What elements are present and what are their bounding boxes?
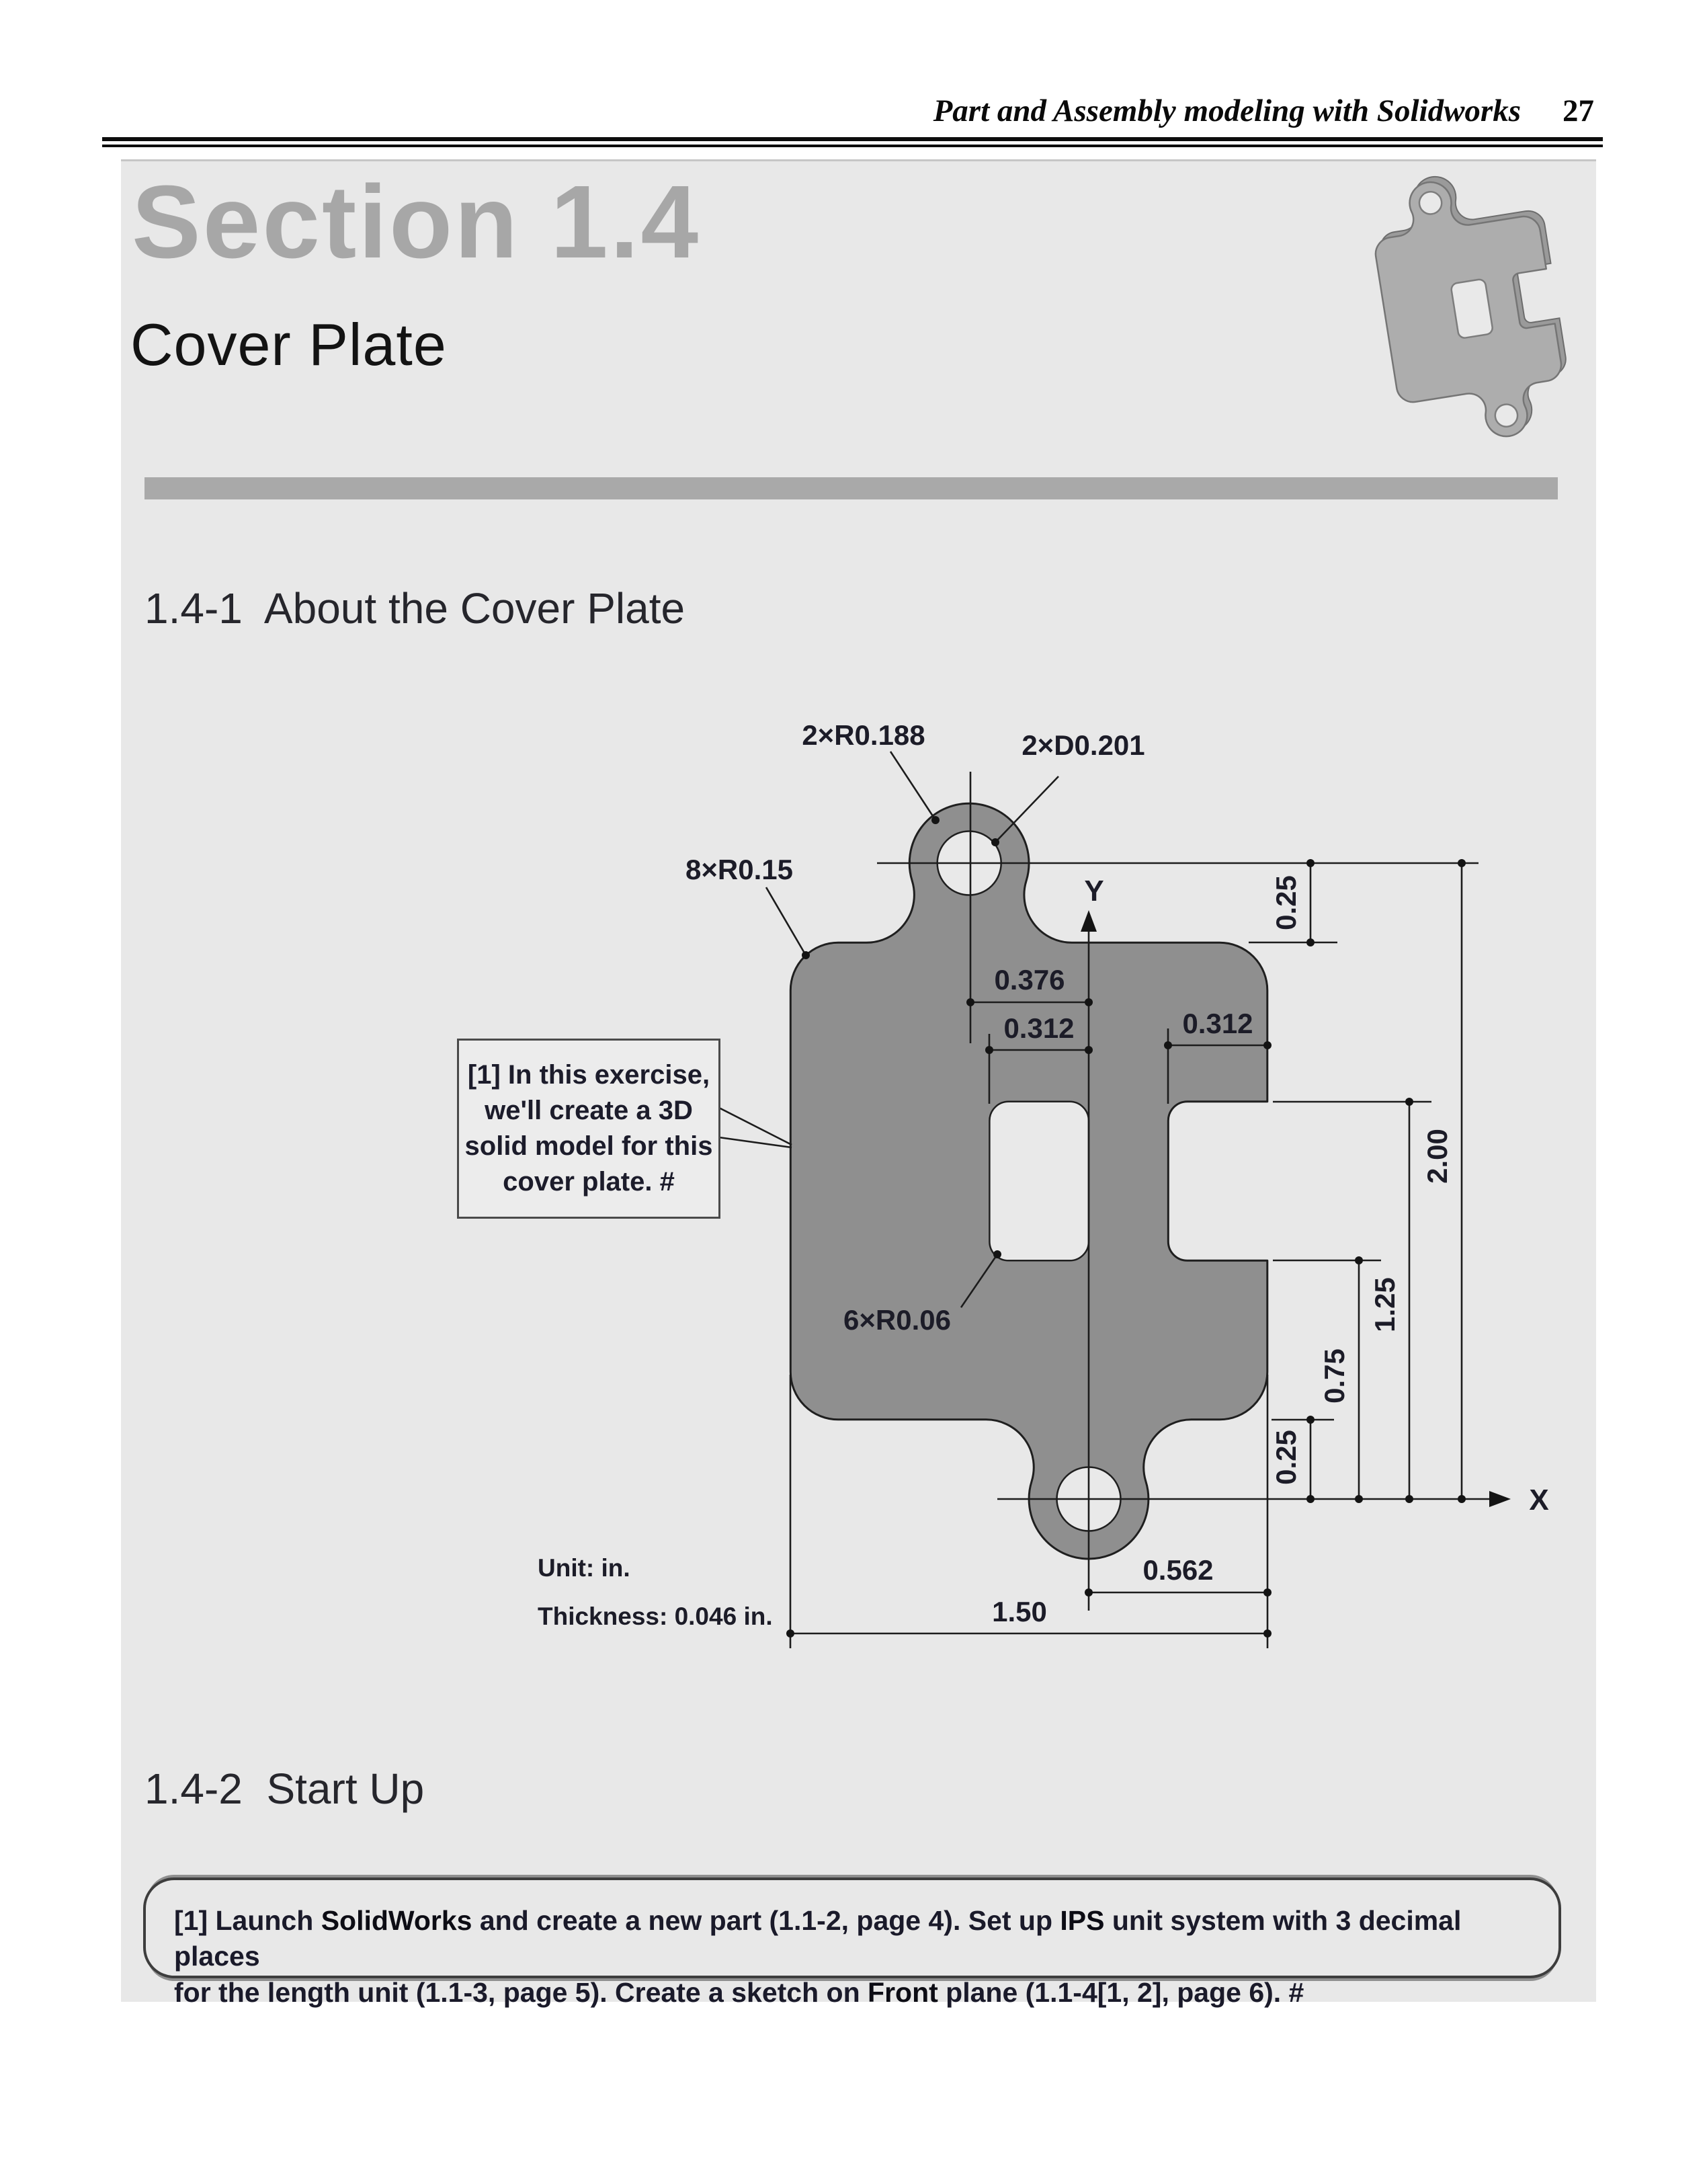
- instruction-box: [1] Launch SolidWorks and create a new p…: [143, 1877, 1561, 1978]
- instr-seg-ips: IPS: [1060, 1905, 1104, 1936]
- leader-d201: [995, 776, 1058, 842]
- unit-note: Unit: in.: [538, 1554, 630, 1582]
- leader-r15: [766, 887, 806, 955]
- instr-seg-front: Front: [868, 1977, 938, 2008]
- x-axis-arrowhead: [1489, 1491, 1511, 1507]
- part-3d-cutout: [1450, 278, 1493, 339]
- dim-label-r06: 6×R0.06: [843, 1304, 951, 1336]
- instr-seg-0: [1] Launch: [174, 1905, 321, 1936]
- x-axis-label: X: [1529, 1484, 1548, 1516]
- dim-label-562: 0.562: [1142, 1554, 1213, 1586]
- callout-line-3: solid model for this: [465, 1129, 713, 1164]
- dim-label-75: 0.75: [1319, 1348, 1350, 1404]
- dim-label-312-left: 0.312: [1003, 1012, 1074, 1044]
- thickness-note: Thickness: 0.046 in.: [538, 1603, 773, 1630]
- leader-r188: [890, 752, 935, 820]
- instr-seg-5: for the length unit (1.1-3, page 5). Cre…: [174, 1977, 868, 2008]
- dim-label-r188: 2×R0.188: [802, 719, 925, 751]
- y-axis-arrowhead: [1081, 910, 1097, 932]
- y-axis-label: Y: [1084, 875, 1104, 907]
- dim-label-25-bottom: 0.25: [1270, 1430, 1302, 1485]
- technical-drawing: 2×R0.188 2×D0.201 8×R0.15 6×R0.06 0.376 …: [0, 0, 1707, 2184]
- dim-label-312-right: 0.312: [1182, 1008, 1253, 1039]
- callout-line-4: cover plate. #: [503, 1164, 675, 1200]
- instr-seg-2: and create a new part (1.1-2, page 4). S…: [472, 1905, 1060, 1936]
- dim-label-376: 0.376: [994, 964, 1065, 996]
- part-3d-thumbnail: [1365, 161, 1577, 452]
- plate-center-cutout: [989, 1102, 1089, 1261]
- dim-label-r15: 8×R0.15: [685, 854, 793, 885]
- callout-line-1: [1] In this exercise,: [468, 1057, 710, 1093]
- dim-label-125: 1.25: [1369, 1277, 1401, 1332]
- book-page: { "header": { "title": "Part and Assembl…: [0, 0, 1707, 2184]
- dim-label-25-top: 0.25: [1270, 875, 1302, 930]
- callout-line-2: we'll create a 3D: [485, 1093, 693, 1129]
- instr-seg-7: plane (1.1-4[1, 2], page 6). #: [938, 1977, 1304, 2008]
- callout-box: [1] In this exercise, we'll create a 3D …: [457, 1039, 720, 1219]
- instr-seg-solidworks: SolidWorks: [321, 1905, 472, 1936]
- dim-label-d201: 2×D0.201: [1022, 729, 1144, 761]
- dim-label-200: 2.00: [1421, 1129, 1453, 1184]
- dim-label-150: 1.50: [992, 1596, 1047, 1627]
